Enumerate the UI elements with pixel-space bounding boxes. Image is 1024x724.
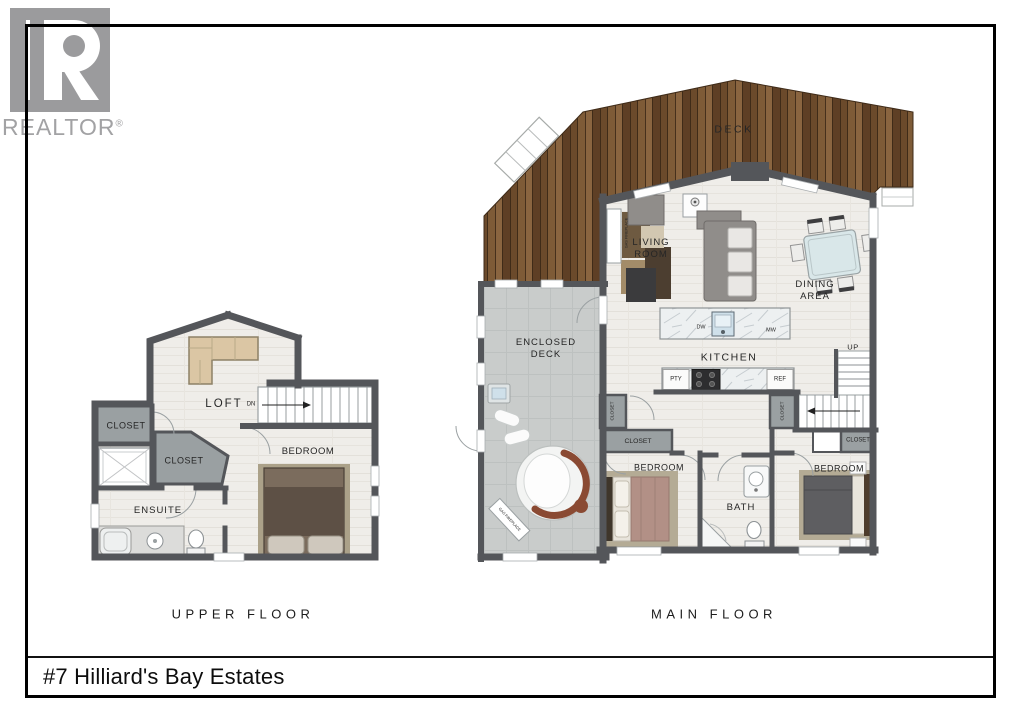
label-closet-mid: CLOSET (164, 455, 203, 466)
label-bedroom-right: BEDROOM (814, 463, 864, 474)
stove-icon (692, 370, 720, 390)
label-dw: DW (696, 325, 705, 332)
label-closet-hall-left: CLOSET (624, 437, 651, 445)
toilet-icon (747, 522, 761, 539)
main-floor-caption: MAIN FLOOR (651, 607, 777, 622)
main-floor-plan (452, 76, 922, 570)
registered-mark-icon: ® (116, 118, 124, 129)
label-deck: DECK (714, 123, 753, 136)
living-gas-fireplace (607, 209, 621, 263)
label-ensuite: ENSUITE (134, 505, 182, 517)
label-bedroom-upper: BEDROOM (282, 446, 335, 458)
label-closet-hall-right: CLOSET (846, 437, 870, 444)
label-closet-top: CLOSET (106, 420, 145, 431)
label-enclosed-deck: ENCLOSED DECK (508, 337, 584, 361)
enclosed-deck-area (481, 284, 605, 558)
label-gas-fireplace-living: GAS FIREPLACE (625, 218, 630, 249)
shower (99, 448, 150, 486)
label-bedroom-left: BEDROOM (634, 462, 684, 473)
label-up: UP (847, 342, 858, 351)
realtor-logo-icon (10, 8, 110, 112)
label-dining-area: DINING AREA (789, 279, 841, 303)
realtor-logo: REALTOR® (10, 8, 110, 117)
toilet-icon (189, 530, 204, 548)
bedroom-right-furniture (799, 462, 875, 550)
label-dn: DN (247, 401, 256, 408)
title-bar: #7 Hilliard's Bay Estates (28, 656, 993, 695)
realtor-brand: REALTOR (2, 114, 116, 140)
sectional-sofa (697, 211, 756, 301)
upper-floor-caption: UPPER FLOOR (172, 607, 315, 622)
label-mw: MW (766, 328, 776, 335)
label-bath: BATH (727, 502, 756, 514)
label-pty: PTY (670, 376, 682, 383)
round-chair (516, 446, 590, 520)
bedroom-left-furniture (602, 471, 678, 547)
stairs-down (258, 387, 372, 423)
floor-plan-sheet: REALTOR® (0, 0, 1024, 724)
label-loft: LOFT (205, 397, 242, 411)
chimney (731, 162, 769, 181)
realtor-logo-text: REALTOR® (2, 114, 124, 141)
label-living-room: LIVING ROOM (623, 237, 679, 261)
label-closet-v-right: CLOSET (780, 401, 786, 420)
property-title: #7 Hilliard's Bay Estates (28, 664, 285, 690)
label-closet-v-left: CLOSET (610, 401, 616, 420)
upper-floor-plan (86, 304, 386, 566)
label-kitchen: KITCHEN (701, 351, 758, 364)
upper-bedroom-bed (258, 464, 350, 556)
label-ref: REF (774, 376, 786, 383)
